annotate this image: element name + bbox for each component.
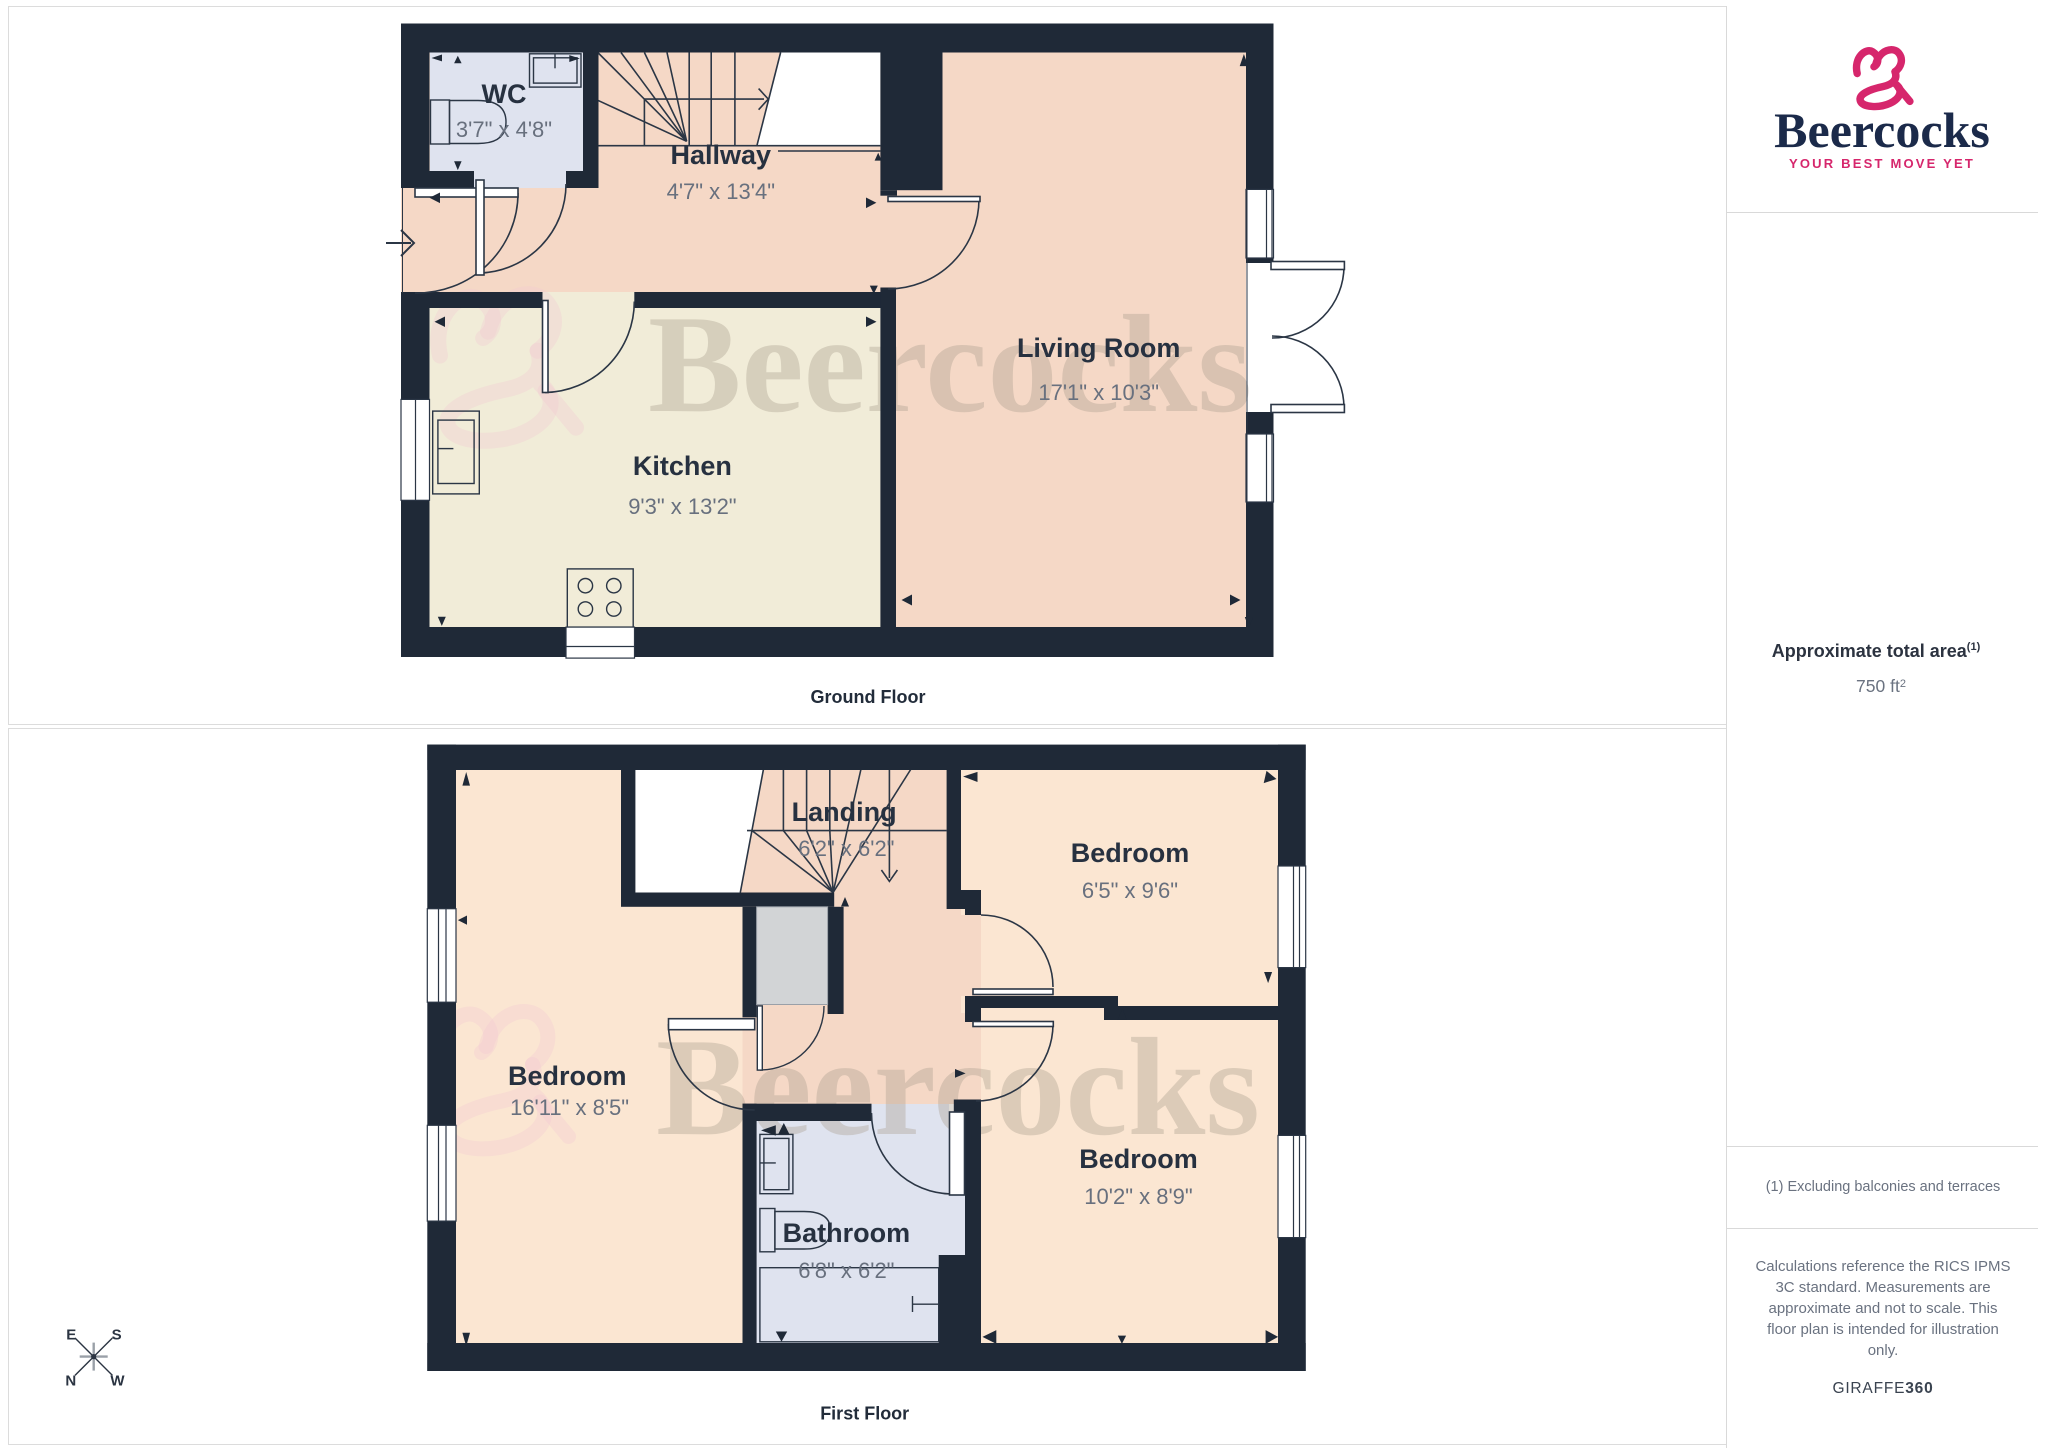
svg-text:Calculations reference the RIC: Calculations reference the RICS IPMS xyxy=(1755,1258,2010,1275)
svg-text:(1) Excluding balconies and te: (1) Excluding balconies and terraces xyxy=(1766,1179,2001,1195)
svg-text:17'1" x 10'3": 17'1" x 10'3" xyxy=(1038,380,1159,405)
svg-text:Kitchen: Kitchen xyxy=(633,451,732,481)
svg-text:Landing: Landing xyxy=(792,797,897,827)
svg-text:Bedroom: Bedroom xyxy=(508,1061,627,1091)
svg-text:Bathroom: Bathroom xyxy=(783,1218,911,1248)
svg-text:WC: WC xyxy=(482,79,527,109)
svg-text:3C standard. Measurements are: 3C standard. Measurements are xyxy=(1775,1279,1990,1296)
svg-text:Living Room: Living Room xyxy=(1017,333,1181,363)
svg-text:First Floor: First Floor xyxy=(820,1404,909,1424)
svg-text:Bedroom: Bedroom xyxy=(1071,838,1190,868)
svg-text:Beercocks: Beercocks xyxy=(648,287,1252,442)
svg-text:W: W xyxy=(110,1373,125,1390)
svg-text:Ground Floor: Ground Floor xyxy=(811,687,926,707)
svg-text:Beercocks: Beercocks xyxy=(1774,102,1990,158)
svg-text:N: N xyxy=(65,1373,76,1390)
svg-text:9'3" x 13'2": 9'3" x 13'2" xyxy=(628,494,736,519)
svg-text:Bedroom: Bedroom xyxy=(1079,1144,1198,1174)
svg-text:GIRAFFE360: GIRAFFE360 xyxy=(1832,1380,1933,1397)
svg-text:E: E xyxy=(66,1327,76,1344)
svg-text:S: S xyxy=(112,1327,122,1344)
svg-text:only.: only. xyxy=(1868,1342,1899,1359)
svg-text:floor plan is intended for ill: floor plan is intended for illustration xyxy=(1767,1321,1999,1338)
svg-text:6'2" x 6'2": 6'2" x 6'2" xyxy=(798,836,894,861)
svg-text:10'2" x 8'9": 10'2" x 8'9" xyxy=(1084,1184,1192,1209)
svg-text:Approximate total area(1): Approximate total area(1) xyxy=(1772,641,1981,661)
svg-text:6'8" x 6'2": 6'8" x 6'2" xyxy=(798,1258,894,1283)
svg-text:4'7" x 13'4": 4'7" x 13'4" xyxy=(667,179,775,204)
svg-text:YOUR BEST MOVE YET: YOUR BEST MOVE YET xyxy=(1789,156,1975,171)
svg-text:approximate and not to scale.: approximate and not to scale. This xyxy=(1768,1300,1997,1317)
svg-text:6'5" x 9'6": 6'5" x 9'6" xyxy=(1082,878,1178,903)
svg-text:16'11" x 8'5": 16'11" x 8'5" xyxy=(510,1095,629,1120)
svg-text:750 ft2: 750 ft2 xyxy=(1856,676,1906,696)
svg-text:3'7" x 4'8": 3'7" x 4'8" xyxy=(456,117,552,142)
svg-text:Hallway: Hallway xyxy=(671,140,772,170)
